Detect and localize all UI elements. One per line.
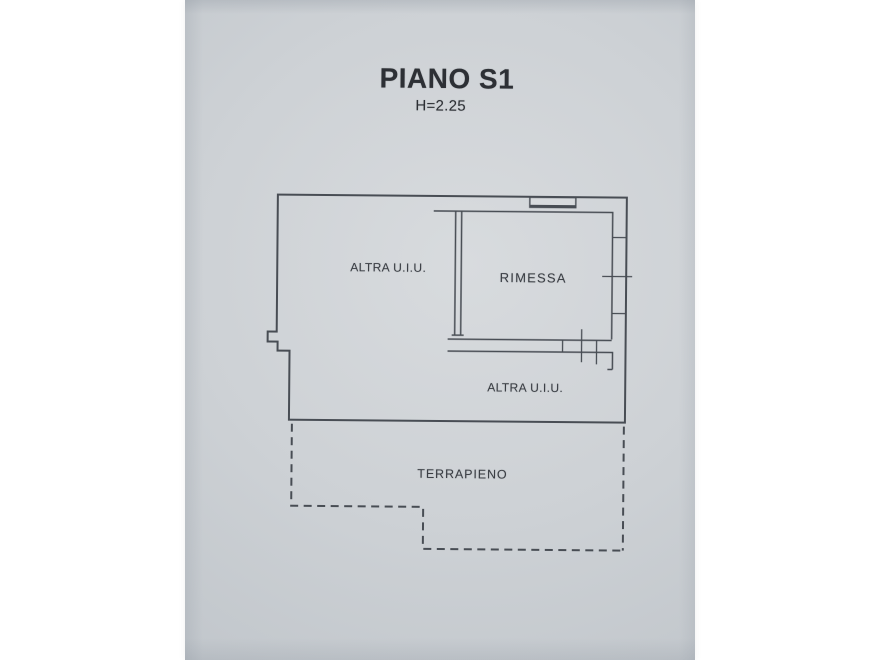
partition-wall (452, 211, 465, 335)
door-opening-marks (562, 329, 596, 364)
floorplan-drawing (182, 0, 698, 660)
room-label-altra-uiu-lower: ALTRA U.I.U. (487, 380, 563, 395)
page-background: PIANO S1 H=2.25 ALT (0, 0, 880, 660)
room-label-rimessa: RIMESSA (500, 270, 567, 286)
room-label-altra-uiu-upper: ALTRA U.I.U. (350, 260, 426, 275)
terrapieno-dashed-outline (291, 424, 625, 551)
floorplan-photo: PIANO S1 H=2.25 ALT (185, 0, 695, 660)
right-wall-ticks (602, 237, 633, 313)
room-label-terrapieno: TERRAPIENO (417, 467, 507, 482)
outer-walls (267, 195, 627, 423)
floorplan-content: PIANO S1 H=2.25 ALT (182, 0, 698, 660)
lower-wall (447, 339, 612, 369)
